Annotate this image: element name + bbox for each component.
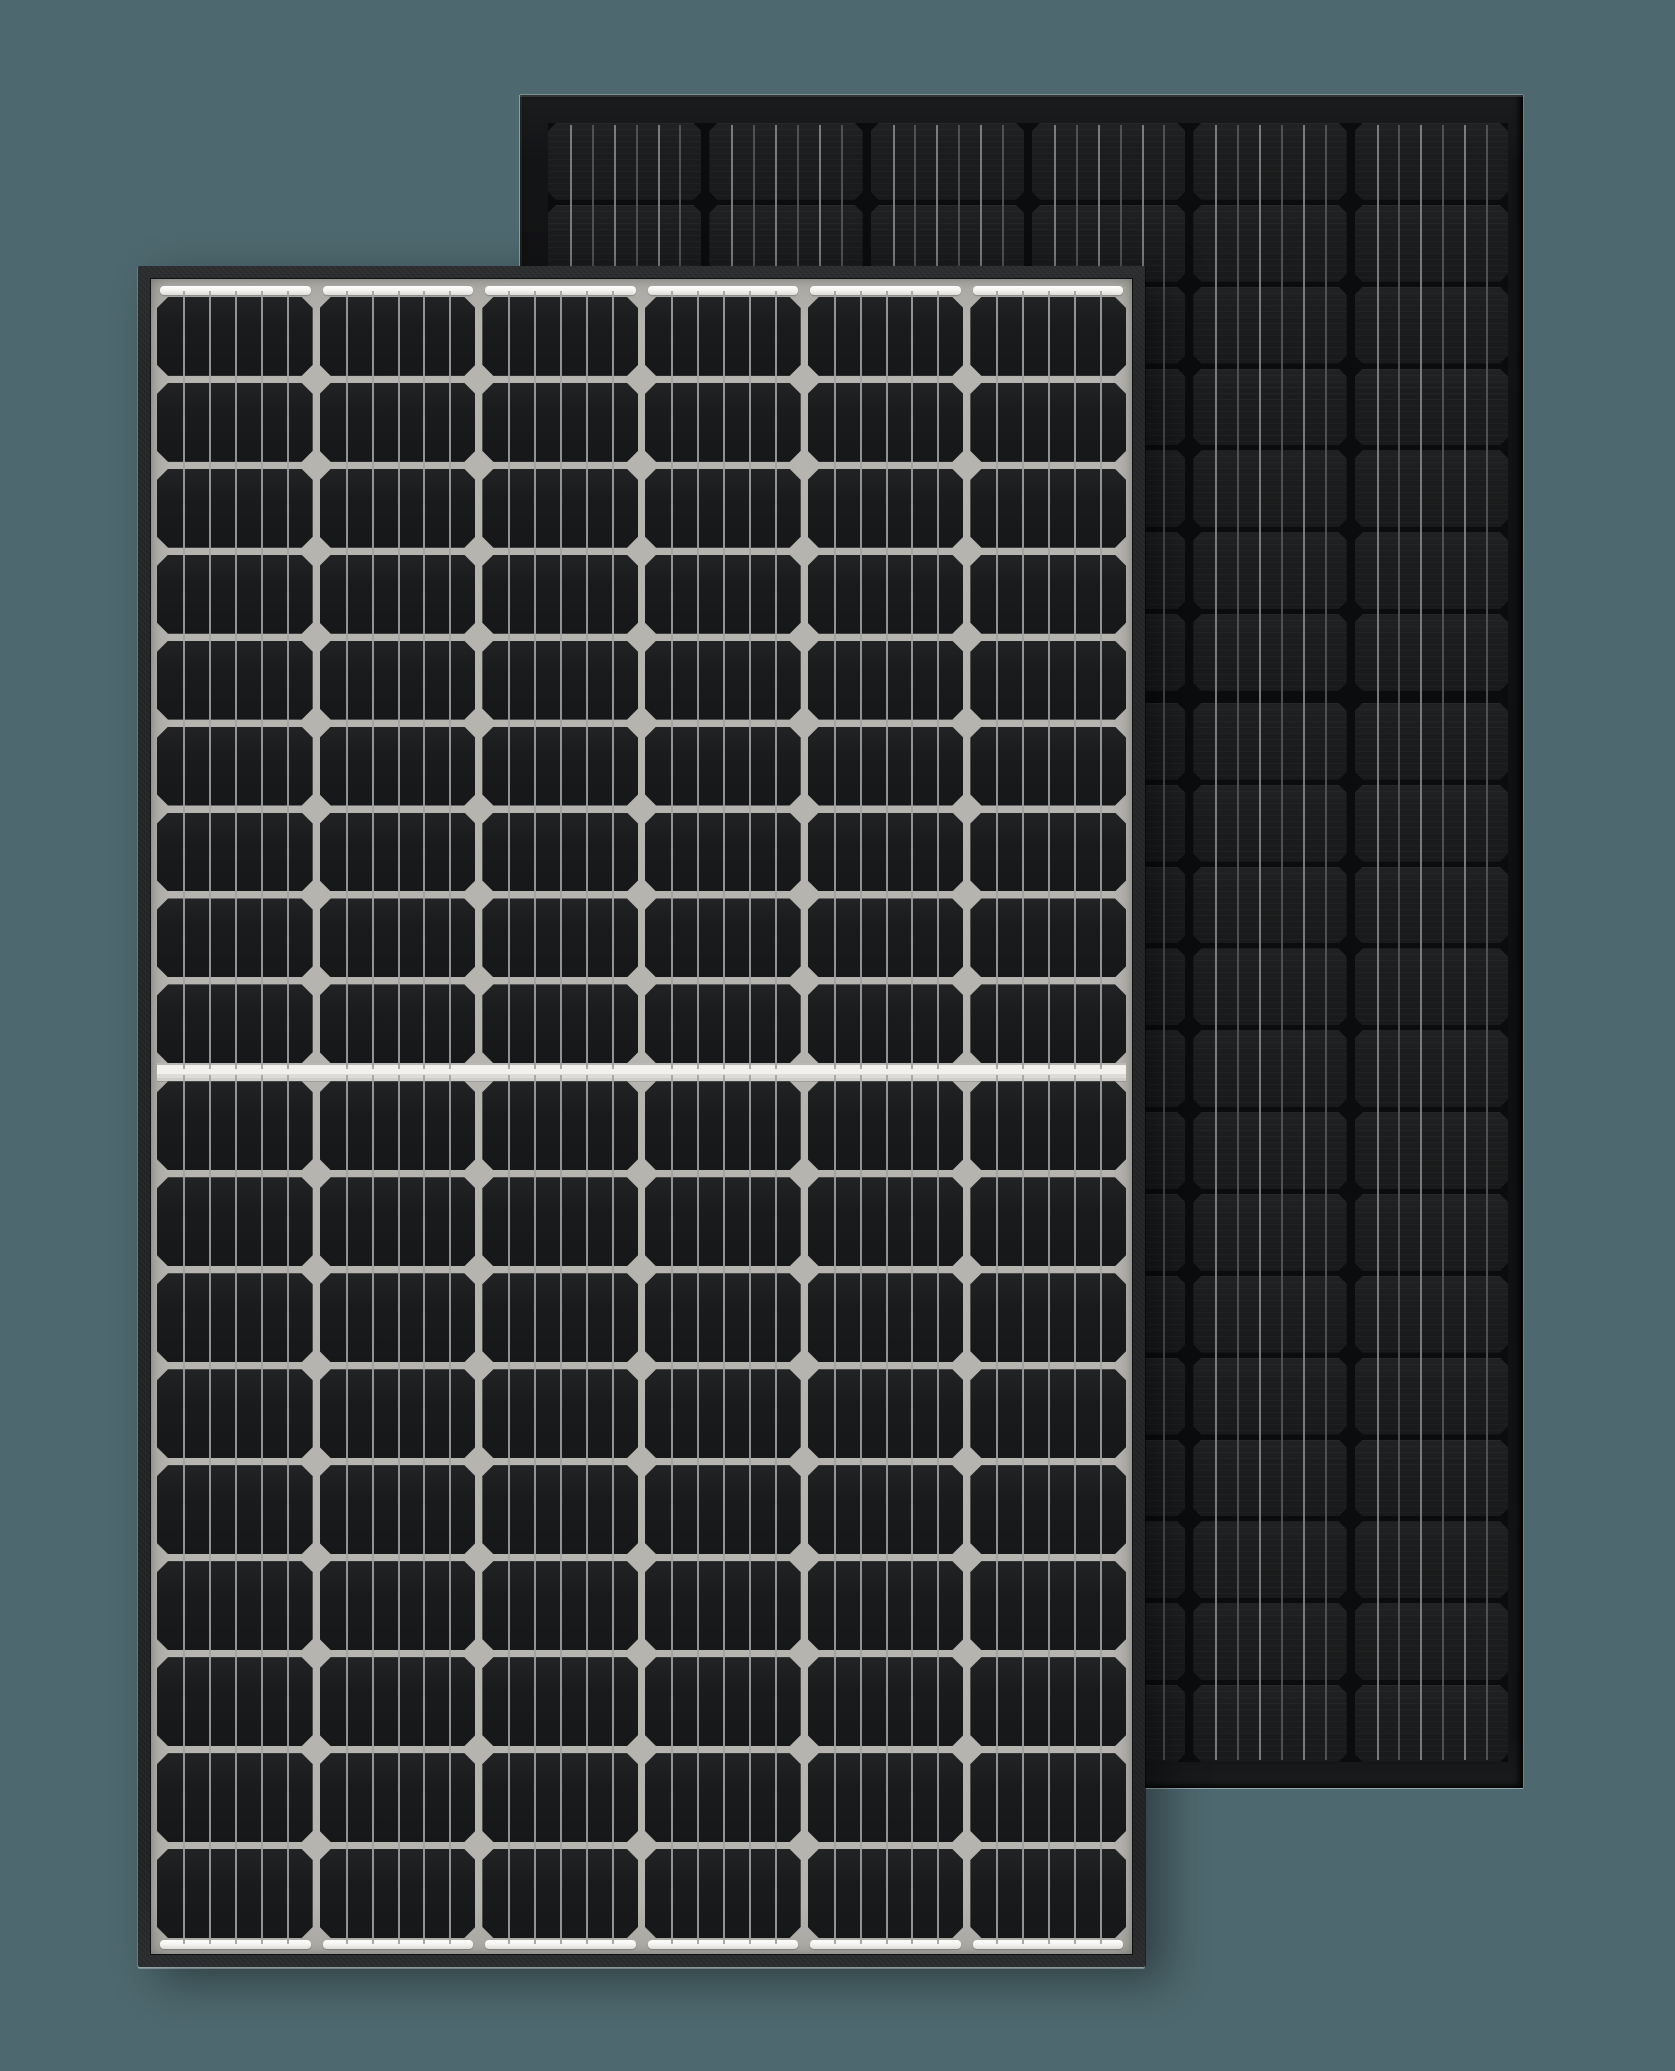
cell-grid-top-half — [157, 297, 1126, 1063]
solar-cell — [320, 1753, 476, 1842]
solar-cell — [645, 1561, 801, 1650]
solar-cell — [970, 297, 1126, 376]
solar-cell — [157, 1177, 313, 1266]
bus-ribbon-strip — [323, 1940, 474, 1949]
solar-cell — [157, 984, 313, 1063]
solar-cell — [645, 1465, 801, 1554]
solar-cell — [970, 1561, 1126, 1650]
solar-cell — [1355, 287, 1508, 364]
solar-cell — [1193, 703, 1346, 780]
solar-cell — [320, 984, 476, 1063]
bus-ribbon-strip — [485, 1940, 636, 1949]
panel-column — [808, 297, 964, 1063]
product-scene: { "scene": { "description": "Two overlap… — [0, 0, 1675, 2071]
panel-column — [482, 1081, 638, 1938]
solar-cell — [482, 1369, 638, 1458]
solar-cell — [1355, 703, 1508, 780]
top-bus-strip-row — [157, 286, 1126, 295]
solar-cell — [1193, 614, 1346, 691]
panel-column — [157, 1081, 313, 1938]
solar-cell — [320, 1369, 476, 1458]
solar-cell — [157, 297, 313, 376]
solar-cell — [808, 641, 964, 720]
solar-cell — [1193, 1358, 1346, 1435]
panel-column — [157, 297, 313, 1063]
solar-cell — [482, 1753, 638, 1842]
solar-cell — [645, 1657, 801, 1746]
solar-cell — [482, 383, 638, 462]
center-divider-bar — [157, 1063, 1126, 1081]
cell-grid-bottom-half — [157, 1081, 1126, 1938]
solar-cell — [157, 1081, 313, 1170]
solar-cell — [1355, 450, 1508, 527]
bottom-bus-strip-row — [157, 1940, 1126, 1949]
solar-cell — [157, 469, 313, 548]
solar-cell — [808, 1753, 964, 1842]
solar-cell — [482, 1561, 638, 1650]
panel-column — [645, 1081, 801, 1938]
solar-cell — [645, 1273, 801, 1362]
solar-cell — [1032, 123, 1185, 200]
panel-column — [808, 1081, 964, 1938]
solar-cell — [808, 727, 964, 806]
solar-cell — [970, 1081, 1126, 1170]
solar-cell — [1355, 867, 1508, 944]
solar-cell — [808, 1561, 964, 1650]
panel-column — [1193, 123, 1346, 1762]
solar-cell — [970, 555, 1126, 634]
solar-cell — [1193, 205, 1346, 282]
solar-cell — [1193, 1521, 1346, 1598]
solar-cell — [808, 383, 964, 462]
solar-cell — [482, 469, 638, 548]
solar-cell — [1355, 1440, 1508, 1517]
solar-cell — [320, 383, 476, 462]
solar-cell — [645, 641, 801, 720]
solar-cell — [482, 1657, 638, 1746]
solar-cell — [808, 1081, 964, 1170]
solar-cell — [548, 123, 701, 200]
solar-cell — [871, 123, 1024, 200]
solar-cell — [1193, 1440, 1346, 1517]
solar-cell — [1355, 614, 1508, 691]
solar-cell — [157, 727, 313, 806]
solar-cell — [970, 641, 1126, 720]
solar-cell — [970, 1273, 1126, 1362]
solar-cell — [808, 1465, 964, 1554]
panel-column — [320, 297, 476, 1063]
panel-column — [970, 297, 1126, 1063]
solar-cell — [645, 898, 801, 977]
foreground-panel-cell-grid — [157, 297, 1126, 1938]
solar-cell — [970, 1465, 1126, 1554]
solar-cell — [320, 555, 476, 634]
solar-cell — [1355, 1112, 1508, 1189]
solar-cell — [645, 555, 801, 634]
solar-cell — [808, 1177, 964, 1266]
solar-cell — [482, 641, 638, 720]
solar-cell — [1193, 123, 1346, 200]
solar-cell — [157, 641, 313, 720]
foreground-panel-body — [157, 286, 1126, 1949]
bus-ribbon-strip — [485, 286, 636, 295]
solar-cell — [1193, 1685, 1346, 1762]
solar-cell — [1355, 1276, 1508, 1353]
panel-column — [482, 297, 638, 1063]
solar-cell — [970, 727, 1126, 806]
solar-cell — [645, 1849, 801, 1938]
solar-cell — [157, 1753, 313, 1842]
solar-cell — [808, 898, 964, 977]
solar-cell — [482, 1465, 638, 1554]
solar-cell — [320, 813, 476, 892]
solar-cell — [320, 469, 476, 548]
solar-cell — [808, 555, 964, 634]
solar-cell — [482, 297, 638, 376]
solar-cell — [320, 898, 476, 977]
solar-cell — [1193, 450, 1346, 527]
solar-cell — [157, 1657, 313, 1746]
solar-cell — [1355, 948, 1508, 1025]
solar-cell — [1193, 369, 1346, 446]
solar-cell — [645, 984, 801, 1063]
solar-cell — [808, 813, 964, 892]
solar-cell — [482, 555, 638, 634]
solar-cell — [1355, 532, 1508, 609]
bus-ribbon-strip — [160, 286, 311, 295]
solar-cell — [1193, 785, 1346, 862]
solar-cell — [1193, 1112, 1346, 1189]
solar-cell — [320, 1657, 476, 1746]
solar-cell — [482, 813, 638, 892]
foreground-panel — [138, 266, 1145, 1967]
solar-cell — [320, 1849, 476, 1938]
solar-cell — [1355, 205, 1508, 282]
solar-cell — [1193, 1030, 1346, 1107]
solar-cell — [970, 984, 1126, 1063]
solar-cell — [482, 898, 638, 977]
solar-cell — [482, 1273, 638, 1362]
bus-ribbon-strip — [323, 286, 474, 295]
solar-cell — [808, 1657, 964, 1746]
solar-cell — [1193, 1276, 1346, 1353]
solar-cell — [1193, 948, 1346, 1025]
bus-ribbon-strip — [648, 286, 799, 295]
solar-cell — [808, 297, 964, 376]
solar-cell — [808, 1849, 964, 1938]
solar-cell — [970, 1849, 1126, 1938]
foreground-panel-backsheet — [151, 279, 1132, 1954]
solar-cell — [1193, 867, 1346, 944]
solar-cell — [320, 727, 476, 806]
panel-column — [645, 297, 801, 1063]
solar-cell — [157, 1465, 313, 1554]
solar-cell — [320, 641, 476, 720]
solar-cell — [482, 984, 638, 1063]
solar-cell — [482, 1177, 638, 1266]
solar-cell — [970, 898, 1126, 977]
solar-cell — [645, 469, 801, 548]
solar-cell — [1193, 1603, 1346, 1680]
solar-cell — [320, 297, 476, 376]
solar-cell — [645, 383, 801, 462]
solar-cell — [157, 898, 313, 977]
solar-cell — [1355, 1603, 1508, 1680]
solar-cell — [1355, 369, 1508, 446]
solar-cell — [157, 1561, 313, 1650]
solar-cell — [970, 1753, 1126, 1842]
solar-cell — [808, 1273, 964, 1362]
solar-cell — [482, 1081, 638, 1170]
solar-cell — [970, 813, 1126, 892]
solar-cell — [1193, 1194, 1346, 1271]
solar-cell — [808, 984, 964, 1063]
solar-cell — [482, 1849, 638, 1938]
solar-cell — [970, 469, 1126, 548]
solar-cell — [645, 297, 801, 376]
solar-cell — [157, 1273, 313, 1362]
solar-cell — [157, 383, 313, 462]
solar-cell — [645, 1081, 801, 1170]
solar-cell — [1355, 1194, 1508, 1271]
solar-cell — [482, 727, 638, 806]
solar-cell — [970, 1177, 1126, 1266]
solar-cell — [157, 1849, 313, 1938]
bus-ribbon-strip — [973, 1940, 1124, 1949]
panel-column — [1355, 123, 1508, 1762]
bus-ribbon-strip — [160, 1940, 311, 1949]
solar-cell — [1355, 1521, 1508, 1598]
solar-cell — [808, 469, 964, 548]
solar-cell — [320, 1177, 476, 1266]
bus-ribbon-strip — [810, 286, 961, 295]
solar-cell — [320, 1465, 476, 1554]
solar-cell — [1355, 1685, 1508, 1762]
solar-cell — [645, 1177, 801, 1266]
solar-cell — [970, 1369, 1126, 1458]
bus-ribbon-strip — [648, 1940, 799, 1949]
bus-ribbon-strip — [810, 1940, 961, 1949]
solar-cell — [1193, 532, 1346, 609]
solar-cell — [320, 1561, 476, 1650]
solar-cell — [1355, 1358, 1508, 1435]
solar-cell — [645, 813, 801, 892]
solar-cell — [645, 1369, 801, 1458]
solar-cell — [157, 1369, 313, 1458]
solar-cell — [320, 1081, 476, 1170]
bus-ribbon-strip — [973, 286, 1124, 295]
solar-cell — [970, 1657, 1126, 1746]
solar-cell — [709, 123, 862, 200]
solar-cell — [320, 1273, 476, 1362]
solar-cell — [1355, 1030, 1508, 1107]
solar-cell — [1355, 123, 1508, 200]
panel-column — [320, 1081, 476, 1938]
solar-cell — [1355, 785, 1508, 862]
solar-cell — [157, 555, 313, 634]
solar-cell — [645, 1753, 801, 1842]
solar-cell — [645, 727, 801, 806]
panel-column — [970, 1081, 1126, 1938]
solar-cell — [1193, 287, 1346, 364]
solar-cell — [157, 813, 313, 892]
solar-cell — [970, 383, 1126, 462]
solar-cell — [808, 1369, 964, 1458]
